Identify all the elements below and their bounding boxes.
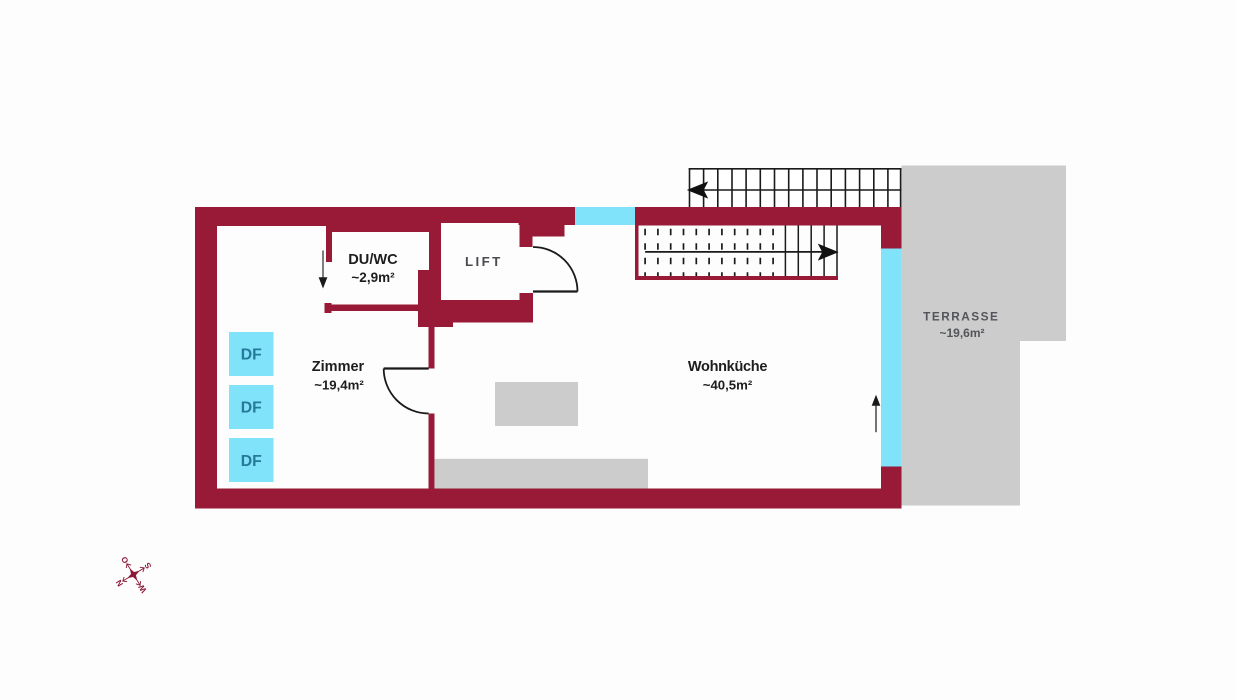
svg-text:Zimmer: Zimmer (312, 359, 365, 375)
svg-text:LIFT: LIFT (465, 254, 503, 269)
svg-text:DU/WC: DU/WC (348, 252, 398, 268)
svg-text:TERRASSE: TERRASSE (923, 310, 999, 324)
svg-text:Wohnküche: Wohnküche (688, 359, 767, 375)
svg-text:~19,4m²: ~19,4m² (314, 378, 364, 393)
svg-text:DF: DF (241, 346, 262, 363)
svg-text:~2,9m²: ~2,9m² (351, 270, 395, 285)
svg-text:~19,6m²: ~19,6m² (939, 326, 984, 340)
svg-text:~40,5m²: ~40,5m² (703, 378, 753, 393)
svg-text:DF: DF (241, 453, 262, 470)
svg-text:DF: DF (241, 400, 262, 417)
